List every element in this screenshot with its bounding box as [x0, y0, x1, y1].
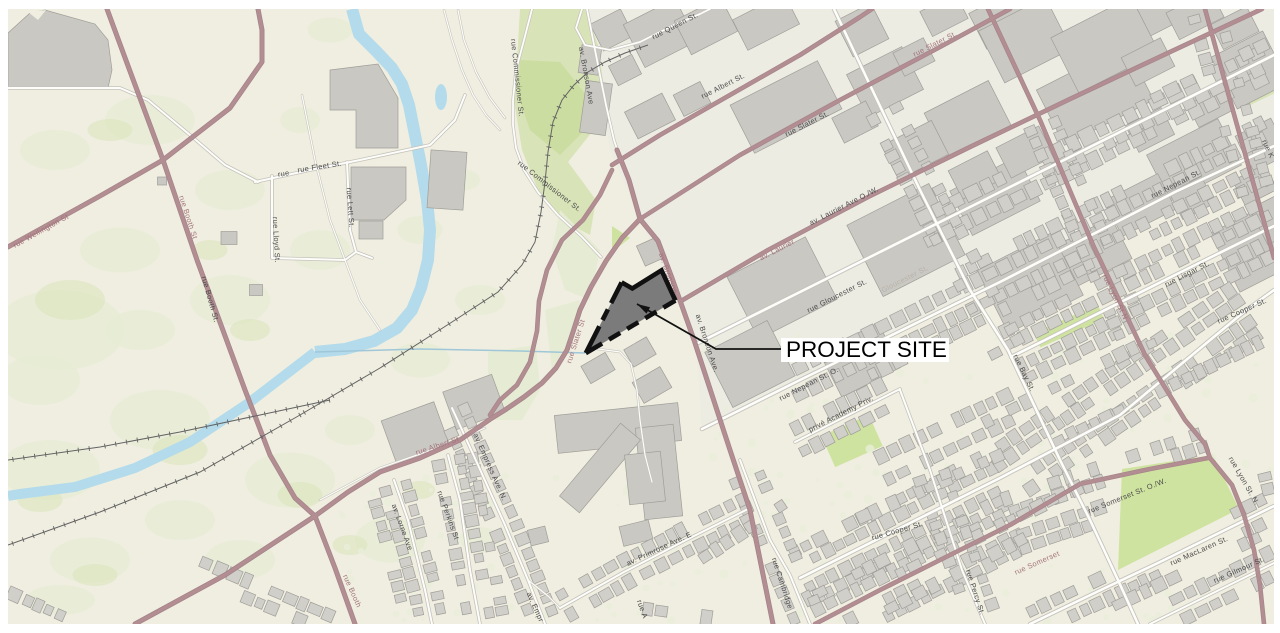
svg-text:PROJECT SITE: PROJECT SITE [786, 337, 947, 362]
svg-text:rue: rue [277, 168, 290, 179]
